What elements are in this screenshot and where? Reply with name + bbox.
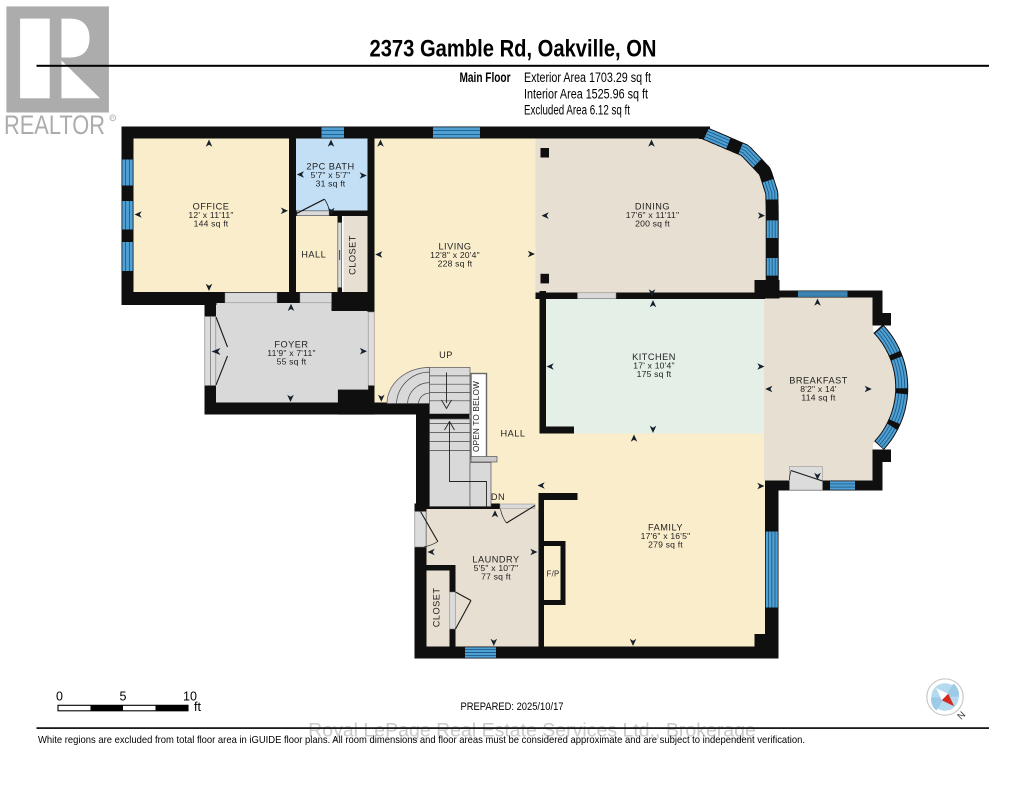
svg-text:114 sq ft: 114 sq ft (801, 393, 836, 403)
svg-text:PREPARED: 2025/10/17: PREPARED: 2025/10/17 (461, 701, 564, 713)
svg-text:55 sq ft: 55 sq ft (277, 357, 307, 367)
svg-text:2373 Gamble Rd, Oakville, ON: 2373 Gamble Rd, Oakville, ON (370, 36, 657, 63)
svg-text:Main Floor: Main Floor (460, 70, 512, 85)
svg-text:144 sq ft: 144 sq ft (194, 219, 229, 229)
svg-text:CLOSET: CLOSET (348, 235, 358, 275)
svg-text:200 sq ft: 200 sq ft (635, 219, 670, 229)
svg-text:HALL: HALL (301, 250, 326, 260)
svg-text:5: 5 (120, 690, 127, 704)
svg-text:0: 0 (56, 690, 63, 704)
svg-text:175 sq ft: 175 sq ft (637, 369, 672, 379)
svg-text:228 sq ft: 228 sq ft (438, 259, 473, 269)
svg-text:REALTOR: REALTOR (4, 110, 105, 140)
svg-text:CLOSET: CLOSET (432, 588, 442, 628)
svg-text:F/P: F/P (547, 570, 560, 579)
svg-text:31 sq ft: 31 sq ft (316, 179, 346, 189)
svg-text:279 sq ft: 279 sq ft (648, 540, 683, 550)
svg-text:DN: DN (491, 492, 505, 502)
svg-text:White regions are excluded fro: White regions are excluded from total fl… (38, 735, 805, 746)
svg-text:UP: UP (439, 350, 453, 360)
svg-text:ft: ft (194, 700, 201, 714)
svg-text:HALL: HALL (501, 428, 526, 438)
svg-text:77 sq ft: 77 sq ft (481, 572, 511, 582)
svg-text:Exterior Area 1703.29 sq ft: Exterior Area 1703.29 sq ft (524, 70, 651, 85)
svg-text:OPEN TO BELOW: OPEN TO BELOW (472, 381, 481, 452)
svg-text:Excluded Area 6.12 sq ft: Excluded Area 6.12 sq ft (524, 103, 630, 118)
svg-text:Interior Area 1525.96 sq ft: Interior Area 1525.96 sq ft (524, 86, 648, 101)
